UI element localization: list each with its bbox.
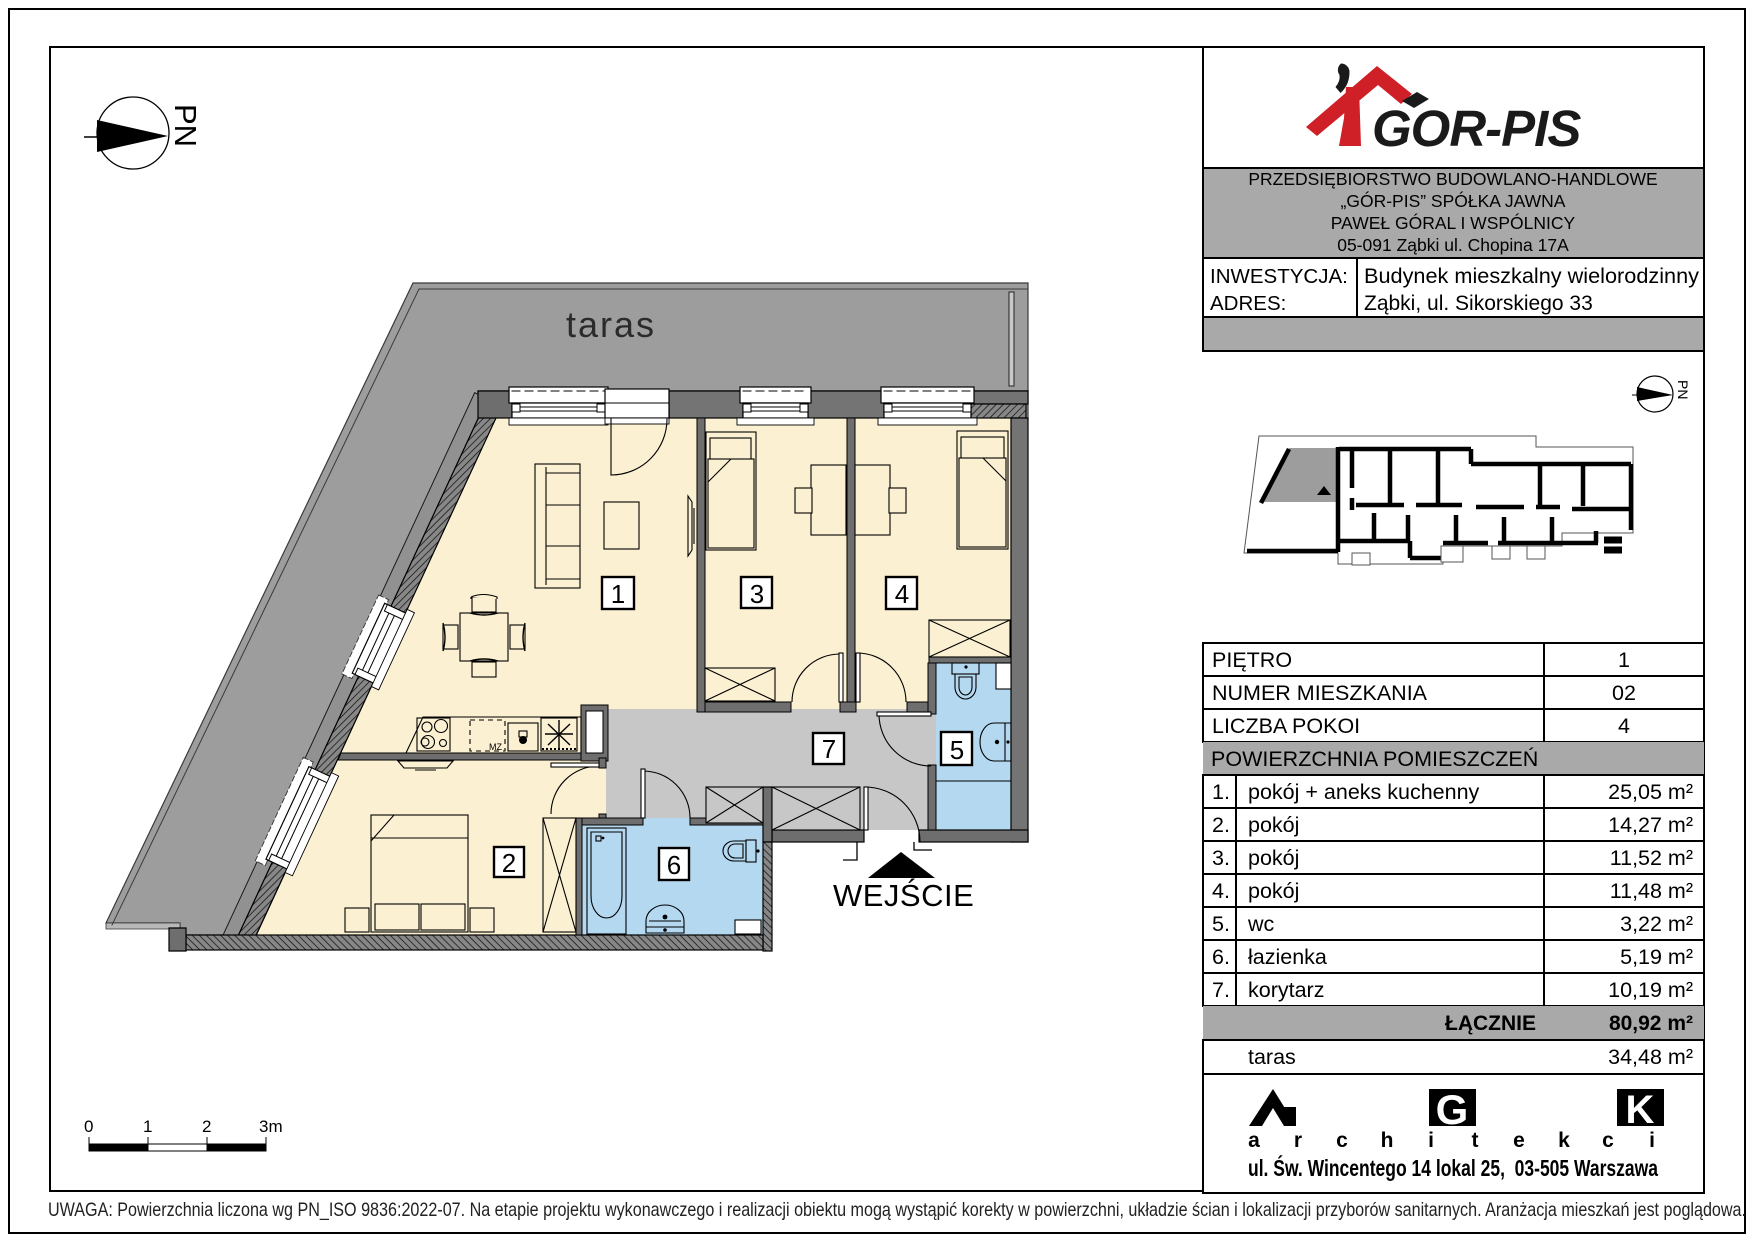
svg-text:02: 02 <box>1612 681 1636 705</box>
svg-text:11,48 m²: 11,48 m² <box>1610 879 1693 903</box>
svg-text:5: 5 <box>950 735 964 765</box>
svg-text:i: i <box>1428 1129 1434 1152</box>
svg-text:3m: 3m <box>259 1117 283 1136</box>
svg-text:2: 2 <box>502 848 516 878</box>
svg-text:7: 7 <box>822 734 836 764</box>
svg-text:4: 4 <box>1618 714 1630 738</box>
svg-text:LICZBA POKOI: LICZBA POKOI <box>1212 714 1360 738</box>
svg-text:INWESTYCJA:: INWESTYCJA: <box>1210 265 1348 288</box>
svg-text:ul. Św. Wincentego 14 lokal 25: ul. Św. Wincentego 14 lokal 25, 03-505 W… <box>1248 1154 1658 1181</box>
svg-text:05-091 Ząbki ul. Chopina 17A: 05-091 Ząbki ul. Chopina 17A <box>1337 235 1569 255</box>
svg-text:h: h <box>1381 1129 1394 1152</box>
svg-text:c: c <box>1336 1129 1348 1152</box>
svg-text:PAWEŁ GÓRAL I WSPÓLNICY: PAWEŁ GÓRAL I WSPÓLNICY <box>1331 212 1576 233</box>
svg-text:GOR-PIS: GOR-PIS <box>1372 100 1581 157</box>
svg-text:4: 4 <box>895 579 909 609</box>
svg-text:Ząbki, ul. Sikorskiego 33: Ząbki, ul. Sikorskiego 33 <box>1364 292 1593 315</box>
svg-text:k: k <box>1558 1129 1570 1152</box>
svg-text:PN: PN <box>1675 380 1691 399</box>
svg-text:1: 1 <box>611 579 625 609</box>
svg-text:2.: 2. <box>1212 813 1230 837</box>
svg-text:5,19 m²: 5,19 m² <box>1620 945 1693 969</box>
svg-text:1.: 1. <box>1212 780 1230 804</box>
svg-text:ADRES:: ADRES: <box>1210 292 1286 315</box>
svg-text:PN: PN <box>168 104 203 147</box>
svg-text:11,52 m²: 11,52 m² <box>1610 846 1693 870</box>
svg-text:taras: taras <box>566 304 656 345</box>
svg-text:PIĘTRO: PIĘTRO <box>1212 648 1292 672</box>
svg-text:a: a <box>1248 1129 1260 1152</box>
svg-text:5.: 5. <box>1212 912 1230 936</box>
svg-text:7.: 7. <box>1212 978 1230 1002</box>
svg-text:3,22 m²: 3,22 m² <box>1620 912 1693 936</box>
svg-text:pokój: pokój <box>1248 879 1299 903</box>
svg-text:K: K <box>1626 1088 1655 1132</box>
svg-text:6.: 6. <box>1212 945 1230 969</box>
svg-text:pokój + aneks kuchenny: pokój + aneks kuchenny <box>1248 780 1480 804</box>
svg-text:Budynek mieszkalny wielorodzin: Budynek mieszkalny wielorodzinny <box>1364 265 1700 288</box>
svg-text:4.: 4. <box>1212 879 1230 903</box>
svg-text:pokój: pokój <box>1248 846 1299 870</box>
svg-text:0: 0 <box>84 1117 93 1136</box>
svg-text:2: 2 <box>202 1117 211 1136</box>
svg-text:14,27 m²: 14,27 m² <box>1608 813 1693 837</box>
svg-text:3.: 3. <box>1212 846 1230 870</box>
svg-text:pokój: pokój <box>1248 813 1299 837</box>
svg-text:G: G <box>1436 1086 1469 1133</box>
svg-text:e: e <box>1513 1129 1525 1152</box>
svg-text:i: i <box>1649 1129 1655 1152</box>
svg-text:NUMER MIESZKANIA: NUMER MIESZKANIA <box>1212 681 1428 705</box>
svg-text:80,92 m²: 80,92 m² <box>1609 1012 1693 1035</box>
svg-text:3: 3 <box>750 579 764 609</box>
svg-text:1: 1 <box>1618 648 1630 672</box>
svg-text:6: 6 <box>667 850 681 880</box>
svg-text:korytarz: korytarz <box>1248 978 1324 1002</box>
svg-text:taras: taras <box>1248 1045 1296 1069</box>
svg-text:t: t <box>1472 1129 1479 1152</box>
svg-text:wc: wc <box>1247 912 1275 936</box>
svg-text:WEJŚCIE: WEJŚCIE <box>833 877 974 913</box>
svg-text:25,05 m²: 25,05 m² <box>1608 780 1693 804</box>
svg-text:POWIERZCHNIA POMIESZCZEŃ: POWIERZCHNIA POMIESZCZEŃ <box>1211 746 1538 771</box>
svg-text:ŁĄCZNIE: ŁĄCZNIE <box>1445 1012 1536 1035</box>
svg-text:PRZEDSIĘBIORSTWO BUDOWLANO-HAN: PRZEDSIĘBIORSTWO BUDOWLANO-HANDLOWE <box>1248 169 1657 189</box>
svg-text:r: r <box>1294 1129 1302 1152</box>
svg-text:UWAGA: Powierzchnia liczona wg: UWAGA: Powierzchnia liczona wg PN_ISO 98… <box>48 1200 1746 1221</box>
svg-text:MZ: MZ <box>489 742 502 752</box>
svg-text:c: c <box>1602 1129 1614 1152</box>
svg-text:34,48 m²: 34,48 m² <box>1608 1045 1693 1069</box>
svg-text:„GÓR-PIS” SPÓŁKA JAWNA: „GÓR-PIS” SPÓŁKA JAWNA <box>1341 190 1566 211</box>
svg-text:10,19 m²: 10,19 m² <box>1608 978 1693 1002</box>
svg-text:1: 1 <box>143 1117 152 1136</box>
svg-text:łazienka: łazienka <box>1248 945 1327 969</box>
